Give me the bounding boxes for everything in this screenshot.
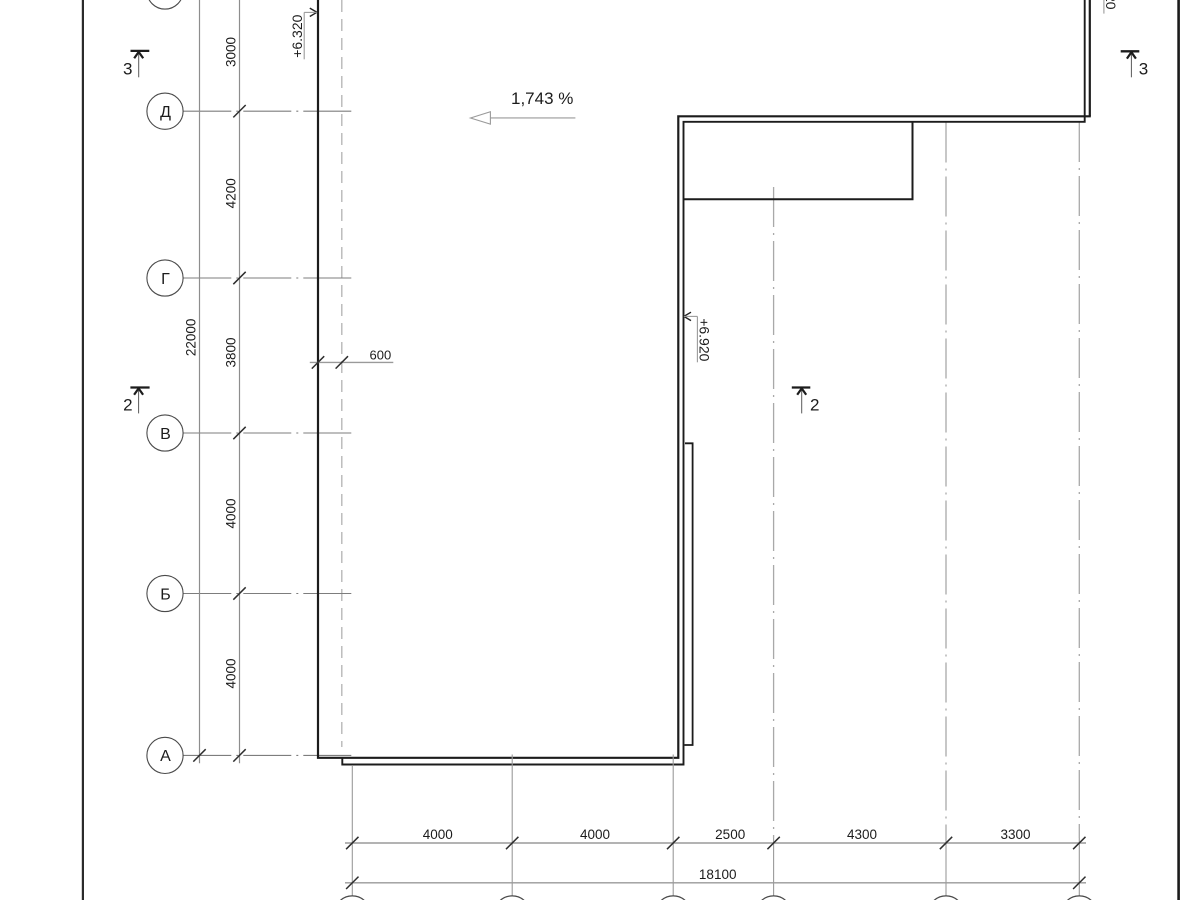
svg-text:+6.320: +6.320 bbox=[289, 14, 305, 57]
svg-text:3300: 3300 bbox=[1000, 827, 1030, 842]
svg-text:4300: 4300 bbox=[847, 827, 877, 842]
svg-text:4000: 4000 bbox=[223, 658, 238, 688]
svg-text:18100: 18100 bbox=[699, 867, 737, 882]
svg-text:2500: 2500 bbox=[715, 827, 745, 842]
svg-text:4000: 4000 bbox=[223, 498, 238, 528]
svg-text:4000: 4000 bbox=[580, 827, 610, 842]
svg-text:+6.920: +6.920 bbox=[697, 318, 713, 361]
svg-text:3: 3 bbox=[1139, 59, 1148, 78]
svg-text:2: 2 bbox=[810, 395, 819, 414]
svg-text:4200: 4200 bbox=[223, 178, 238, 208]
svg-text:4000: 4000 bbox=[423, 827, 453, 842]
svg-text:Д: Д bbox=[160, 104, 171, 121]
svg-text:3800: 3800 bbox=[223, 337, 238, 367]
svg-text:2: 2 bbox=[123, 395, 132, 414]
svg-text:600: 600 bbox=[370, 347, 392, 362]
svg-text:1,743 %: 1,743 % bbox=[511, 89, 573, 108]
svg-text:3000: 3000 bbox=[223, 37, 238, 67]
svg-text:+8.120: +8.120 bbox=[1103, 0, 1119, 10]
svg-text:Г: Г bbox=[161, 271, 170, 288]
svg-text:В: В bbox=[160, 426, 171, 443]
svg-text:3: 3 bbox=[123, 59, 132, 78]
svg-text:22000: 22000 bbox=[184, 319, 199, 357]
svg-text:А: А bbox=[160, 748, 171, 765]
svg-text:Б: Б bbox=[160, 586, 171, 603]
